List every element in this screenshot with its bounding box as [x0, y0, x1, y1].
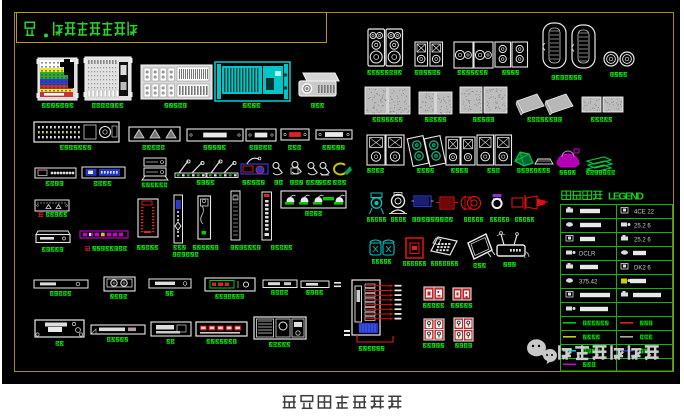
svg-text:25.2 6: 25.2 6: [634, 223, 651, 229]
svg-text:DK2 6: DK2 6: [634, 265, 651, 271]
svg-text:4CE 22: 4CE 22: [634, 209, 655, 215]
svg-text:LEGEND: LEGEND: [608, 191, 644, 203]
svg-text:25.2 6: 25.2 6: [634, 237, 651, 243]
svg-text:375.42: 375.42: [579, 279, 598, 285]
svg-text:DCLR: DCLR: [579, 251, 596, 257]
